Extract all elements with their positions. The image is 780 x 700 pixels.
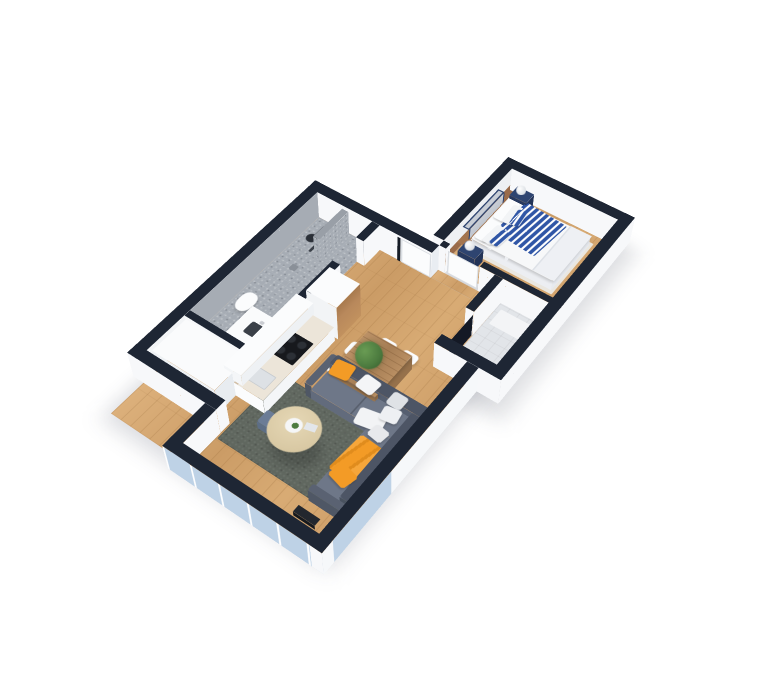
sphere-lamp [465,240,475,250]
sphere-lamp [516,185,526,195]
entry-door-gap [397,236,400,261]
scene-3d [0,0,780,700]
potted-plant [355,341,383,369]
render-canvas [0,0,780,700]
